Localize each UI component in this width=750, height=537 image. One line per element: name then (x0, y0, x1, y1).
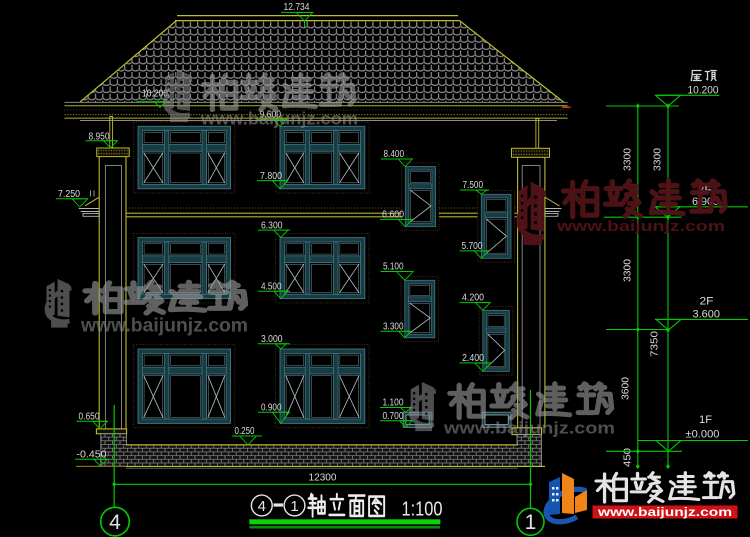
svg-text:1: 1 (290, 498, 298, 515)
svg-text:5.700: 5.700 (462, 241, 483, 252)
svg-text:450: 450 (623, 448, 634, 467)
svg-text:4.200: 4.200 (462, 293, 484, 304)
svg-text:www.baijunjz.com: www.baijunjz.com (556, 219, 725, 235)
svg-text:12300: 12300 (309, 472, 337, 484)
svg-text:3300: 3300 (623, 148, 634, 171)
svg-text:3600: 3600 (620, 377, 631, 400)
svg-text:1F: 1F (699, 414, 712, 426)
svg-text:±0.000: ±0.000 (686, 429, 720, 441)
svg-text:5.100: 5.100 (383, 262, 404, 273)
svg-text:3.600: 3.600 (693, 309, 721, 321)
svg-text:www.baijunjz.com: www.baijunjz.com (80, 316, 248, 337)
svg-text:1.100: 1.100 (383, 398, 404, 409)
svg-text:4: 4 (258, 498, 266, 515)
svg-text:7.500: 7.500 (463, 180, 484, 191)
svg-text:0.250: 0.250 (235, 426, 255, 437)
svg-text:1: 1 (525, 511, 537, 534)
svg-text:www.baijunjz.com: www.baijunjz.com (597, 507, 732, 519)
svg-text:4: 4 (109, 511, 121, 534)
svg-text:3300: 3300 (623, 259, 634, 282)
svg-text:10.200: 10.200 (688, 85, 719, 97)
svg-text:www.baijunjz.com: www.baijunjz.com (200, 109, 358, 129)
svg-text:3300: 3300 (653, 148, 664, 171)
svg-text:7350: 7350 (650, 330, 661, 357)
svg-text:2F: 2F (700, 296, 714, 308)
svg-text:2.400: 2.400 (462, 353, 484, 364)
svg-text:8.400: 8.400 (384, 149, 405, 160)
svg-text:6.600: 6.600 (382, 210, 404, 221)
svg-text:1:100: 1:100 (402, 499, 443, 521)
svg-text:12.734: 12.734 (284, 2, 310, 13)
svg-text:www.baijunjz.com: www.baijunjz.com (443, 419, 615, 438)
